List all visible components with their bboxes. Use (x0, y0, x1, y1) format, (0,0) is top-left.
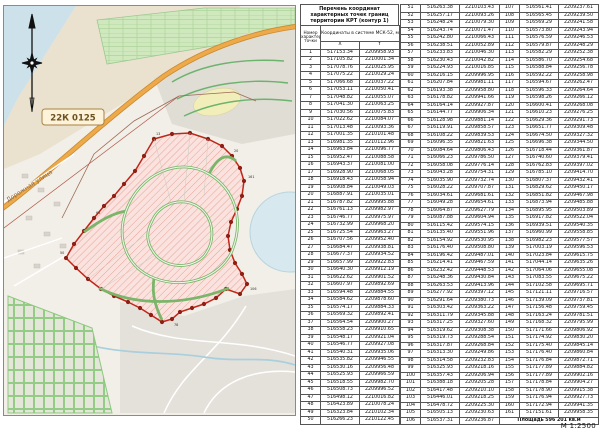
point-number-cell: 156 (500, 372, 520, 380)
point-number-cell: 89 (401, 290, 421, 298)
x-value-cell: 516982.23 (520, 237, 559, 245)
table-row: 141517044.142209635.26 (500, 260, 599, 268)
x-value-cell: 516565.45 (520, 12, 559, 20)
point-number-cell: 27 (301, 244, 321, 252)
y-value-cell: 2209732.74 (460, 177, 500, 185)
y-value-cell: 2210052.89 (460, 42, 500, 50)
y-value-cell: 2209941.35 (559, 402, 599, 410)
table-row: 65516144.772209906.34 (401, 110, 500, 118)
table-row: 128516762.832209397.02 (500, 162, 599, 170)
y-value-cell: 2209252.38 (559, 50, 599, 58)
y-value-cell: 2209655.08 (559, 267, 599, 275)
y-value-cell: 2210055.07 (360, 94, 400, 102)
point-number-cell: 14 (301, 147, 321, 155)
point-number-header: Номер характерной точки (301, 26, 321, 50)
table-row: 18516918.432210058.94 (301, 177, 400, 185)
point-number-cell: 30 (301, 267, 321, 275)
point-number-cell: 51 (401, 5, 421, 13)
x-value-cell: 516417.48 (421, 387, 460, 395)
table-row: 70516084.642209806.43 (401, 147, 500, 155)
table-row: 27516684.472209938.81 (301, 244, 400, 252)
point-number-cell: 44 (301, 372, 321, 380)
y-value-cell: 2209902.16 (559, 372, 599, 380)
y-value-cell: 2209241.58 (559, 20, 599, 28)
x-value-cell: 516928.90 (321, 169, 360, 177)
x-value-cell: 516196.42 (421, 252, 460, 260)
x-value-cell: 517163.24 (520, 312, 559, 320)
point-number-cell: 130 (500, 177, 520, 185)
table-row: 55516242.802210066.43 (401, 35, 500, 43)
table-row: 101516388.182209205.28 (401, 380, 500, 388)
x-value-cell: 516154.92 (421, 237, 460, 245)
x-value-cell: 516684.47 (321, 244, 360, 252)
table-row: 23516746.772209975.97 (301, 214, 400, 222)
point-number-cell: 84 (401, 252, 421, 260)
point-number-cell: 113 (500, 50, 520, 58)
x-value-cell: 516388.18 (421, 380, 460, 388)
x-value-cell: 516600.41 (520, 102, 559, 110)
y-value-cell: 2209707.87 (460, 185, 500, 193)
coords-system-header: Координаты в системе МСК-52, м (321, 26, 400, 42)
table-row: 90516291.642209380.73 (401, 297, 500, 305)
table-row: 83516176.402209508.80 (401, 245, 500, 253)
y-value-cell: 2209327.60 (460, 320, 500, 328)
point-number-cell: 153 (500, 350, 520, 358)
table-row: 33516594.482209884.55 (301, 289, 400, 297)
point-number-cell: 45 (301, 379, 321, 387)
table-row: 15516952.472210088.58 (301, 154, 400, 162)
table-row: 56516238.512210052.89 (401, 42, 500, 50)
y-value-cell: 2209806.43 (460, 147, 500, 155)
x-value-cell: 516096.35 (421, 140, 460, 148)
table-row: 72516058.082209776.14 (401, 162, 500, 170)
point-number-cell: 140 (500, 252, 520, 260)
table-row: 148517163.242209781.51 (500, 312, 599, 320)
y-value-cell: 2209904.27 (559, 380, 599, 388)
point-number-cell: 40 (301, 342, 321, 350)
table-row: 28516677.372209934.52 (301, 252, 400, 260)
x-value-cell: 516540.31 (321, 349, 360, 357)
point-number-cell: 50 (301, 417, 321, 425)
y-value-cell: 2209344.50 (559, 140, 599, 148)
point-number-cell: 46 (301, 387, 321, 395)
table-row: 11517013.482210093.36 (301, 124, 400, 132)
y-value-cell: 2209218.25 (460, 395, 500, 403)
y-value-cell: 2209830.20 (559, 335, 599, 343)
table-row: 24516732.992209968.20 (301, 222, 400, 230)
point-number-cell: 96 (401, 342, 421, 350)
point-number-cell: 69 (401, 140, 421, 148)
table-row: 97516313.302209249.86 (401, 350, 500, 358)
table-row: 99516325.932209218.16 (401, 365, 500, 373)
table-row: 112516579.872209248.29 (500, 42, 599, 50)
y-value-cell: 2209327.32 (559, 132, 599, 140)
table-row: 155517177.892209884.82 (500, 365, 599, 373)
point-number-cell: 78 (401, 207, 421, 215)
table-row: 75516028.222209707.87 (401, 185, 500, 193)
y-value-cell: 2209268.84 (460, 342, 500, 350)
y-value-cell: 2209249.86 (460, 350, 500, 358)
coordinate-table-3: 107516561.412209237.61108516565.45220923… (499, 4, 599, 425)
y-value-cell: 2209915.38 (559, 387, 599, 395)
point-number-cell: 117 (500, 80, 520, 88)
point-number-cell: 111 (500, 35, 520, 43)
svg-text:161: 161 (248, 175, 254, 179)
point-number-cell: 11 (301, 124, 321, 132)
point-number-cell: 55 (401, 35, 421, 43)
point-number-cell: 48 (301, 402, 321, 410)
x-value-cell: 516576.59 (520, 35, 559, 43)
table-row: 132516851.822209467.98 (500, 192, 599, 200)
table-row: 1517153.342209958.93 (301, 49, 400, 57)
y-value-cell: 2209941.66 (460, 95, 500, 103)
y-value-cell: 2209795.99 (559, 320, 599, 328)
x-value-cell: 516066.23 (421, 155, 460, 163)
point-number-cell: 107 (500, 5, 520, 13)
y-value-cell: 2210096.77 (360, 147, 400, 155)
y-value-cell: 2209996.95 (460, 72, 500, 80)
point-number-cell: 13 (301, 139, 321, 147)
point-number-cell: 121 (500, 110, 520, 118)
y-value-cell: 2209884.33 (360, 304, 400, 312)
table-row: 118516596.332209264.64 (500, 87, 599, 95)
y-value-cell: 2209884.55 (360, 289, 400, 297)
y-value-cell: 2209654.61 (460, 200, 500, 208)
y-value-cell: 2210035.01 (360, 192, 400, 200)
y-value-cell: 2209239.50 (559, 12, 599, 20)
y-value-cell: 2209276.25 (559, 110, 599, 118)
table-row: 124516674.502209327.32 (500, 132, 599, 140)
y-value-cell: 2209361.87 (559, 147, 599, 155)
table-row: 107516561.412209237.61 (500, 5, 599, 13)
x-value-cell: 517023.84 (520, 252, 559, 260)
y-value-cell: 2209345.88 (460, 312, 500, 320)
y-value-cell: 2209268.08 (559, 102, 599, 110)
y-value-cell: 2210029.24 (360, 72, 400, 80)
point-number-cell: 60 (401, 72, 421, 80)
point-number-cell: 58 (401, 57, 421, 65)
point-number-cell: 87 (401, 275, 421, 283)
point-number-cell: 1 (301, 49, 321, 57)
point-number-cell: 41 (301, 349, 321, 357)
point-number-cell: 62 (401, 87, 421, 95)
table-row: 102516417.482209210.10 (401, 387, 500, 395)
x-value-cell: 516193.38 (421, 87, 460, 95)
point-number-cell: 155 (500, 365, 520, 373)
x-value-cell: 516851.82 (520, 192, 559, 200)
plan-document-page: 1320 5064 78106 161 22К 0125 Дорожная ул… (0, 0, 600, 434)
point-number-cell: 33 (301, 289, 321, 297)
point-number-cell: 54 (401, 27, 421, 35)
x-value-cell: 516207.84 (421, 80, 460, 88)
table-row: 151517174.922209830.20 (500, 335, 599, 343)
table-row: 121516610.232209276.25 (500, 110, 599, 118)
y-value-cell: 2209237.61 (559, 5, 599, 13)
y-value-cell: 2209635.26 (559, 260, 599, 268)
table-row: 63516178.822209941.66 (401, 95, 500, 103)
y-value-cell: 2209206.94 (460, 372, 500, 380)
svg-text:50: 50 (60, 251, 64, 255)
y-value-cell: 2209432.41 (559, 177, 599, 185)
point-number-cell: 119 (500, 95, 520, 103)
point-number-cell: 151 (500, 335, 520, 343)
y-value-cell: 2209759.45 (559, 305, 599, 313)
table-row: 49516323.842210102.34 (301, 409, 400, 417)
y-value-cell: 2210088.58 (360, 154, 400, 162)
table-row: 42516535.822209946.55 (301, 357, 400, 365)
y-value-cell: 2209781.51 (559, 312, 599, 320)
coordinate-table-column-3: 107516561.412209237.61108516565.45220923… (499, 4, 598, 425)
y-value-cell: 2209503.89 (559, 207, 599, 215)
point-number-cell: 5 (301, 79, 321, 87)
point-number-cell: 17 (301, 169, 321, 177)
point-number-cell: 31 (301, 274, 321, 282)
point-number-cell: 152 (500, 342, 520, 350)
y-value-cell: 2209922.83 (360, 259, 400, 267)
point-number-cell: 118 (500, 87, 520, 95)
y-value-cell: 2209574.15 (460, 222, 500, 230)
y-value-cell: 2209210.10 (460, 387, 500, 395)
x-value-cell: 517048.82 (321, 94, 360, 102)
x-value-cell: 517053.11 (321, 87, 360, 95)
x-value-cell: 516233.83 (421, 50, 460, 58)
x-value-cell: 517171.66 (520, 327, 559, 335)
x-value-cell: 517078.76 (321, 64, 360, 72)
point-number-cell: 70 (401, 147, 421, 155)
table-row: 54516243.742210071.47 (401, 27, 500, 35)
table-row: 126516718.442209361.87 (500, 147, 599, 155)
table-row: 59516224.932210016.85 (401, 65, 500, 73)
table-row: 46516508.732209996.52 (301, 387, 400, 395)
y-value-cell: 2209448.53 (460, 267, 500, 275)
table-row: 62516193.382209958.80 (401, 87, 500, 95)
x-value-cell: 516573.80 (520, 27, 559, 35)
table-row: 7517048.822210055.07 (301, 94, 400, 102)
point-number-cell: 34 (301, 297, 321, 305)
point-number-cell: 6 (301, 87, 321, 95)
y-value-cell: 2209266.12 (559, 95, 599, 103)
table-row: 92516311.792209345.88 (401, 312, 500, 320)
y-value-cell: 2209995.88 (360, 199, 400, 207)
point-number-cell: 158 (500, 387, 520, 395)
x-value-cell: 517001.35 (321, 132, 360, 140)
point-number-cell: 124 (500, 132, 520, 140)
point-number-cell: 137 (500, 230, 520, 238)
y-value-cell: 2210075.83 (360, 109, 400, 117)
y-value-cell: 2209938.81 (360, 244, 400, 252)
table-row: 160517172.942209941.35 (500, 402, 599, 410)
y-value-cell: 2210016.82 (360, 394, 400, 402)
table-row: 20516887.912210035.01 (301, 192, 400, 200)
x-value-cell: 517151.61 (520, 410, 559, 418)
table-row: 138516982.232209577.57 (500, 237, 599, 245)
table-row: 152517175.402209845.14 (500, 342, 599, 350)
point-number-cell: 145 (500, 290, 520, 298)
point-number-cell: 122 (500, 117, 520, 125)
x-value-cell: 517030.56 (321, 109, 360, 117)
point-number-cell: 39 (301, 334, 321, 342)
x-value-cell: 516696.38 (520, 140, 559, 148)
y-value-cell: 2209975.97 (360, 214, 400, 222)
y-value-cell: 2209952.40 (360, 237, 400, 245)
point-number-cell: 108 (500, 12, 520, 20)
table-row: 58516230.432210042.82 (401, 57, 500, 65)
y-value-cell: 2209243.94 (559, 27, 599, 35)
table-row: 157517178.842209904.27 (500, 380, 599, 388)
y-value-cell: 2209963.27 (360, 229, 400, 237)
y-value-cell: 2209675.22 (559, 275, 599, 283)
table-row: 114516586.702209254.68 (500, 57, 599, 65)
map-scale-label: М 1:2500 (561, 422, 596, 430)
table-row: 130516807.372209432.41 (500, 177, 599, 185)
x-value-cell: 517102.58 (520, 282, 559, 290)
y-value-cell: 2210046.30 (460, 50, 500, 58)
x-value-cell: 516135.40 (421, 230, 460, 238)
y-value-cell: 2209414.70 (559, 170, 599, 178)
y-value-cell: 2210050.41 (360, 87, 400, 95)
x-value-cell: 516214.41 (421, 260, 460, 268)
x-value-cell: 516762.83 (520, 162, 559, 170)
y-value-cell: 2209430.84 (460, 275, 500, 283)
y-value-cell: 2209379.41 (559, 155, 599, 163)
x-value-cell: 516657.99 (321, 259, 360, 267)
x-value-cell: 516746.77 (321, 214, 360, 222)
table-row: 6517053.112210050.41 (301, 87, 400, 95)
x-value-cell: 516505.13 (421, 410, 460, 418)
x-value-cell: 517139.09 (520, 297, 559, 305)
y-value-cell: 2209754.31 (460, 170, 500, 178)
x-value-cell: 516561.41 (520, 5, 559, 13)
point-number-cell: 65 (401, 110, 421, 118)
point-number-cell: 116 (500, 72, 520, 80)
point-number-cell: 136 (500, 222, 520, 230)
y-value-cell: 2210081.00 (360, 162, 400, 170)
table-row: 40516546.772209927.08 (301, 342, 400, 350)
y-value-cell: 2209958.80 (460, 87, 500, 95)
table-row: 86516232.422209448.53 (401, 267, 500, 275)
x-value-cell: 516058.08 (421, 162, 460, 170)
x-value-cell: 516548.17 (321, 334, 360, 342)
x-value-cell: 517177.89 (520, 372, 559, 380)
point-number-cell: 161 (500, 410, 520, 418)
y-value-cell: 2209681.61 (460, 192, 500, 200)
point-number-cell: 21 (301, 199, 321, 207)
table-row: 104516478.722209225.30 (401, 402, 500, 410)
x-value-cell: 516314.58 (421, 357, 460, 365)
x-value-cell: 516446.01 (421, 395, 460, 403)
point-number-cell: 4 (301, 72, 321, 80)
table-row: 51516263.382210103.43 (401, 5, 500, 13)
x-value-cell: 517044.14 (520, 260, 559, 268)
point-number-cell: 61 (401, 80, 421, 88)
y-value-cell: 2209892.69 (360, 282, 400, 290)
point-number-cell: 135 (500, 215, 520, 223)
point-number-cell: 112 (500, 42, 520, 50)
y-value-cell: 2209906.34 (460, 110, 500, 118)
point-number-cell: 160 (500, 402, 520, 410)
table-row: 146517139.092209737.81 (500, 297, 599, 305)
y-value-cell: 2209522.04 (559, 215, 599, 223)
table-row: 71516066.232209786.50 (401, 155, 500, 163)
y-value-cell: 2210037.22 (360, 79, 400, 87)
table-row: 156517177.892209902.16 (500, 372, 599, 380)
table-row: 108516565.452209239.50 (500, 12, 599, 20)
x-value-cell: 517121.11 (520, 290, 559, 298)
y-value-cell: 2209845.14 (559, 342, 599, 350)
x-value-cell: 516963.84 (321, 147, 360, 155)
point-number-cell: 125 (500, 140, 520, 148)
table-title: Перечень координат характерных точек гра… (300, 4, 399, 25)
point-number-cell: 57 (401, 50, 421, 58)
x-value-cell: 517075.22 (321, 72, 360, 80)
table-row: 44516525.932209966.59 (301, 372, 400, 380)
x-value-cell: 516357.43 (421, 372, 460, 380)
y-value-cell: 2209413.96 (460, 282, 500, 290)
table-row: 2517105.822210001.34 (301, 57, 400, 65)
x-value-cell: 516588.84 (520, 65, 559, 73)
table-row: 79516087.882209604.94 (401, 215, 500, 223)
y-value-cell: 2209487.01 (460, 252, 500, 260)
x-value-cell: 516049.28 (421, 200, 460, 208)
x-value-cell: 516558.23 (321, 327, 360, 335)
y-value-cell: 2210122.45 (360, 417, 400, 425)
x-value-cell: 517064.06 (520, 267, 559, 275)
table-row: 12517001.352210101.48 (301, 132, 400, 140)
x-value-cell: 516939.51 (520, 222, 559, 230)
point-number-cell: 90 (401, 297, 421, 305)
point-number-cell: 104 (401, 402, 421, 410)
y-value-cell: 2210068.05 (360, 169, 400, 177)
x-value-cell: 516423.89 (321, 402, 360, 410)
table-row: 139517003.192209596.53 (500, 245, 599, 253)
point-number-cell: 150 (500, 327, 520, 335)
map-canvas: 1320 5064 78106 161 22К 0125 Дорожная ул… (4, 6, 295, 415)
point-number-cell: 97 (401, 350, 421, 358)
x-value-cell: 516943.37 (321, 162, 360, 170)
point-number-cell: 147 (500, 305, 520, 313)
x-value-cell: 516582.29 (520, 50, 559, 58)
x-value-cell: 516518.55 (321, 379, 360, 387)
x-value-cell: 516787.82 (321, 199, 360, 207)
point-number-cell: 38 (301, 327, 321, 335)
table-row: 73516043.282209754.31 (401, 170, 500, 178)
table-row: 87516248.362209430.84 (401, 275, 500, 283)
y-value-cell: 2209508.80 (460, 245, 500, 253)
y-value-cell: 2209262.47 (559, 80, 599, 88)
x-value-cell: 516807.37 (520, 177, 559, 185)
table-row: 4517075.222210029.24 (301, 72, 400, 80)
point-number-cell: 35 (301, 304, 321, 312)
y-value-cell: 2209256.78 (559, 65, 599, 73)
table-row: 109516569.292209241.58 (500, 20, 599, 28)
y-value-cell: 2209786.50 (460, 155, 500, 163)
point-number-cell: 129 (500, 170, 520, 178)
y-value-cell: 2209927.08 (360, 342, 400, 350)
y-value-cell: 2209254.68 (559, 57, 599, 65)
point-number-cell: 143 (500, 275, 520, 283)
table-row: 31516622.622209901.52 (301, 274, 400, 282)
y-value-cell: 2209996.52 (360, 387, 400, 395)
table-row: 78516064.872209627.79 (401, 207, 500, 215)
y-value-cell: 2209860.84 (559, 350, 599, 358)
y-value-cell: 2209981.11 (460, 80, 500, 88)
point-number-cell: 32 (301, 282, 321, 290)
x-value-cell: 516594.48 (321, 289, 360, 297)
y-value-cell: 2209716.57 (559, 290, 599, 298)
x-value-cell: 516610.23 (520, 110, 559, 118)
table-row: 60516216.152209996.95 (401, 72, 500, 80)
x-value-cell: 517174.92 (520, 335, 559, 343)
